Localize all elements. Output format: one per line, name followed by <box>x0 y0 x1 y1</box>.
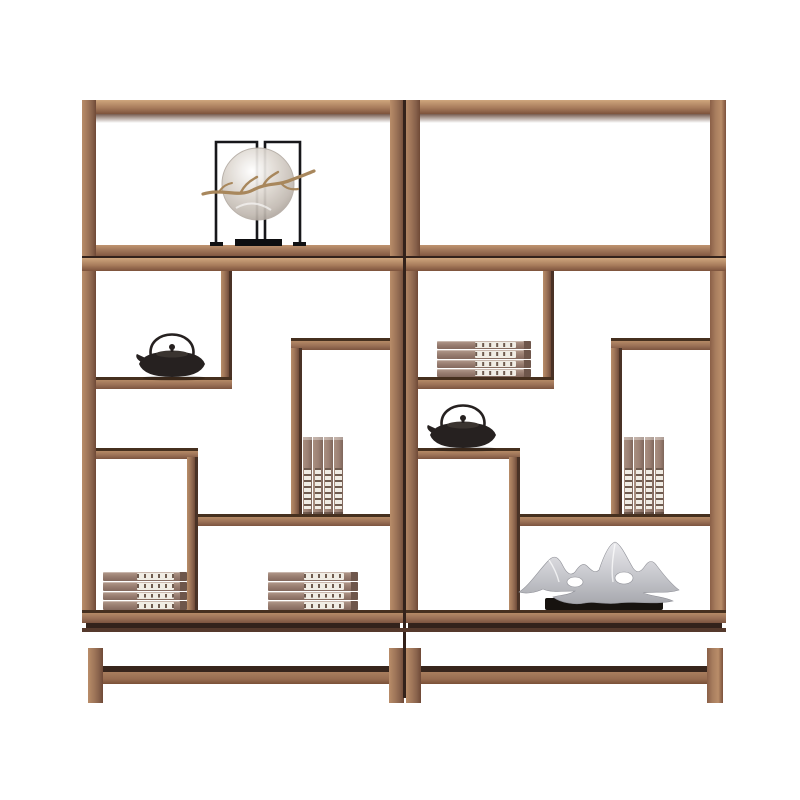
glass-orb-ornament <box>193 128 323 252</box>
top-left-frame-left-post <box>82 100 96 258</box>
left-bay-upper-divider <box>221 271 232 380</box>
center-module-seam <box>403 100 406 648</box>
teapot-right <box>425 392 509 452</box>
left-bay-l-shelf <box>96 448 198 459</box>
right-bay-upper-right-shelf <box>611 338 710 350</box>
base-leg-center-right <box>406 648 421 703</box>
base-stretcher-left <box>98 666 390 684</box>
flat-books-bottom-center <box>268 572 358 610</box>
book-spine <box>334 437 343 514</box>
right-bay-right-post <box>710 271 726 610</box>
base-leg-center-left <box>389 648 404 703</box>
left-bay-lower-shelf <box>187 514 390 526</box>
left-bay-left-post <box>82 271 96 610</box>
book-spine <box>634 437 643 514</box>
book <box>268 601 358 610</box>
base-stretcher-right <box>414 666 708 684</box>
book-spine <box>324 437 333 514</box>
right-bay-books-shelf <box>418 377 554 389</box>
mountain-sculpture <box>515 536 691 612</box>
right-bay-left-post <box>404 271 418 610</box>
product-photo <box>0 0 800 800</box>
top-right-frame-left-post <box>404 100 420 258</box>
book-spine <box>313 437 322 514</box>
top-right-frame-top-rail <box>404 100 726 114</box>
book <box>103 572 187 581</box>
flat-books-right-bay <box>437 341 531 377</box>
book <box>437 369 531 377</box>
top-left-frame-right-post <box>390 100 404 258</box>
left-bay-upper-right-shelf <box>291 338 390 350</box>
book <box>103 601 187 610</box>
book <box>268 592 358 601</box>
top-right-frame-inner-shadow <box>420 114 710 123</box>
book-spine <box>624 437 633 514</box>
book-spine <box>655 437 664 514</box>
left-bay-bottom-rail <box>82 610 404 623</box>
right-bay-lower-shelf <box>509 514 710 526</box>
left-bay-lower-divider <box>187 457 198 610</box>
flat-books-bottom-left <box>103 572 187 610</box>
standing-books-right <box>624 437 664 514</box>
book <box>103 592 187 601</box>
middle-right-top-rail <box>404 258 726 271</box>
book <box>437 360 531 368</box>
standing-books-left <box>303 437 343 514</box>
base-rail-right <box>404 628 726 648</box>
top-left-frame-top-rail <box>82 100 404 114</box>
book <box>103 582 187 591</box>
base-leg-far-left <box>88 648 103 703</box>
top-right-frame-right-post <box>710 100 726 258</box>
left-bay-right-post <box>390 271 404 610</box>
book-spine <box>645 437 654 514</box>
book-spine <box>303 437 312 514</box>
teapot-left <box>134 321 218 381</box>
middle-left-top-rail <box>82 258 404 271</box>
book <box>268 572 358 581</box>
right-bay-mid-divider <box>611 348 622 516</box>
book <box>268 582 358 591</box>
top-left-frame-inner-shadow <box>96 114 390 123</box>
left-bay-mid-divider <box>291 348 302 516</box>
base-center-seam <box>403 648 406 698</box>
base-leg-far-right <box>707 648 723 703</box>
book <box>437 350 531 358</box>
book <box>437 341 531 349</box>
right-bay-upper-divider <box>543 271 554 380</box>
base-rail-left <box>82 628 404 648</box>
